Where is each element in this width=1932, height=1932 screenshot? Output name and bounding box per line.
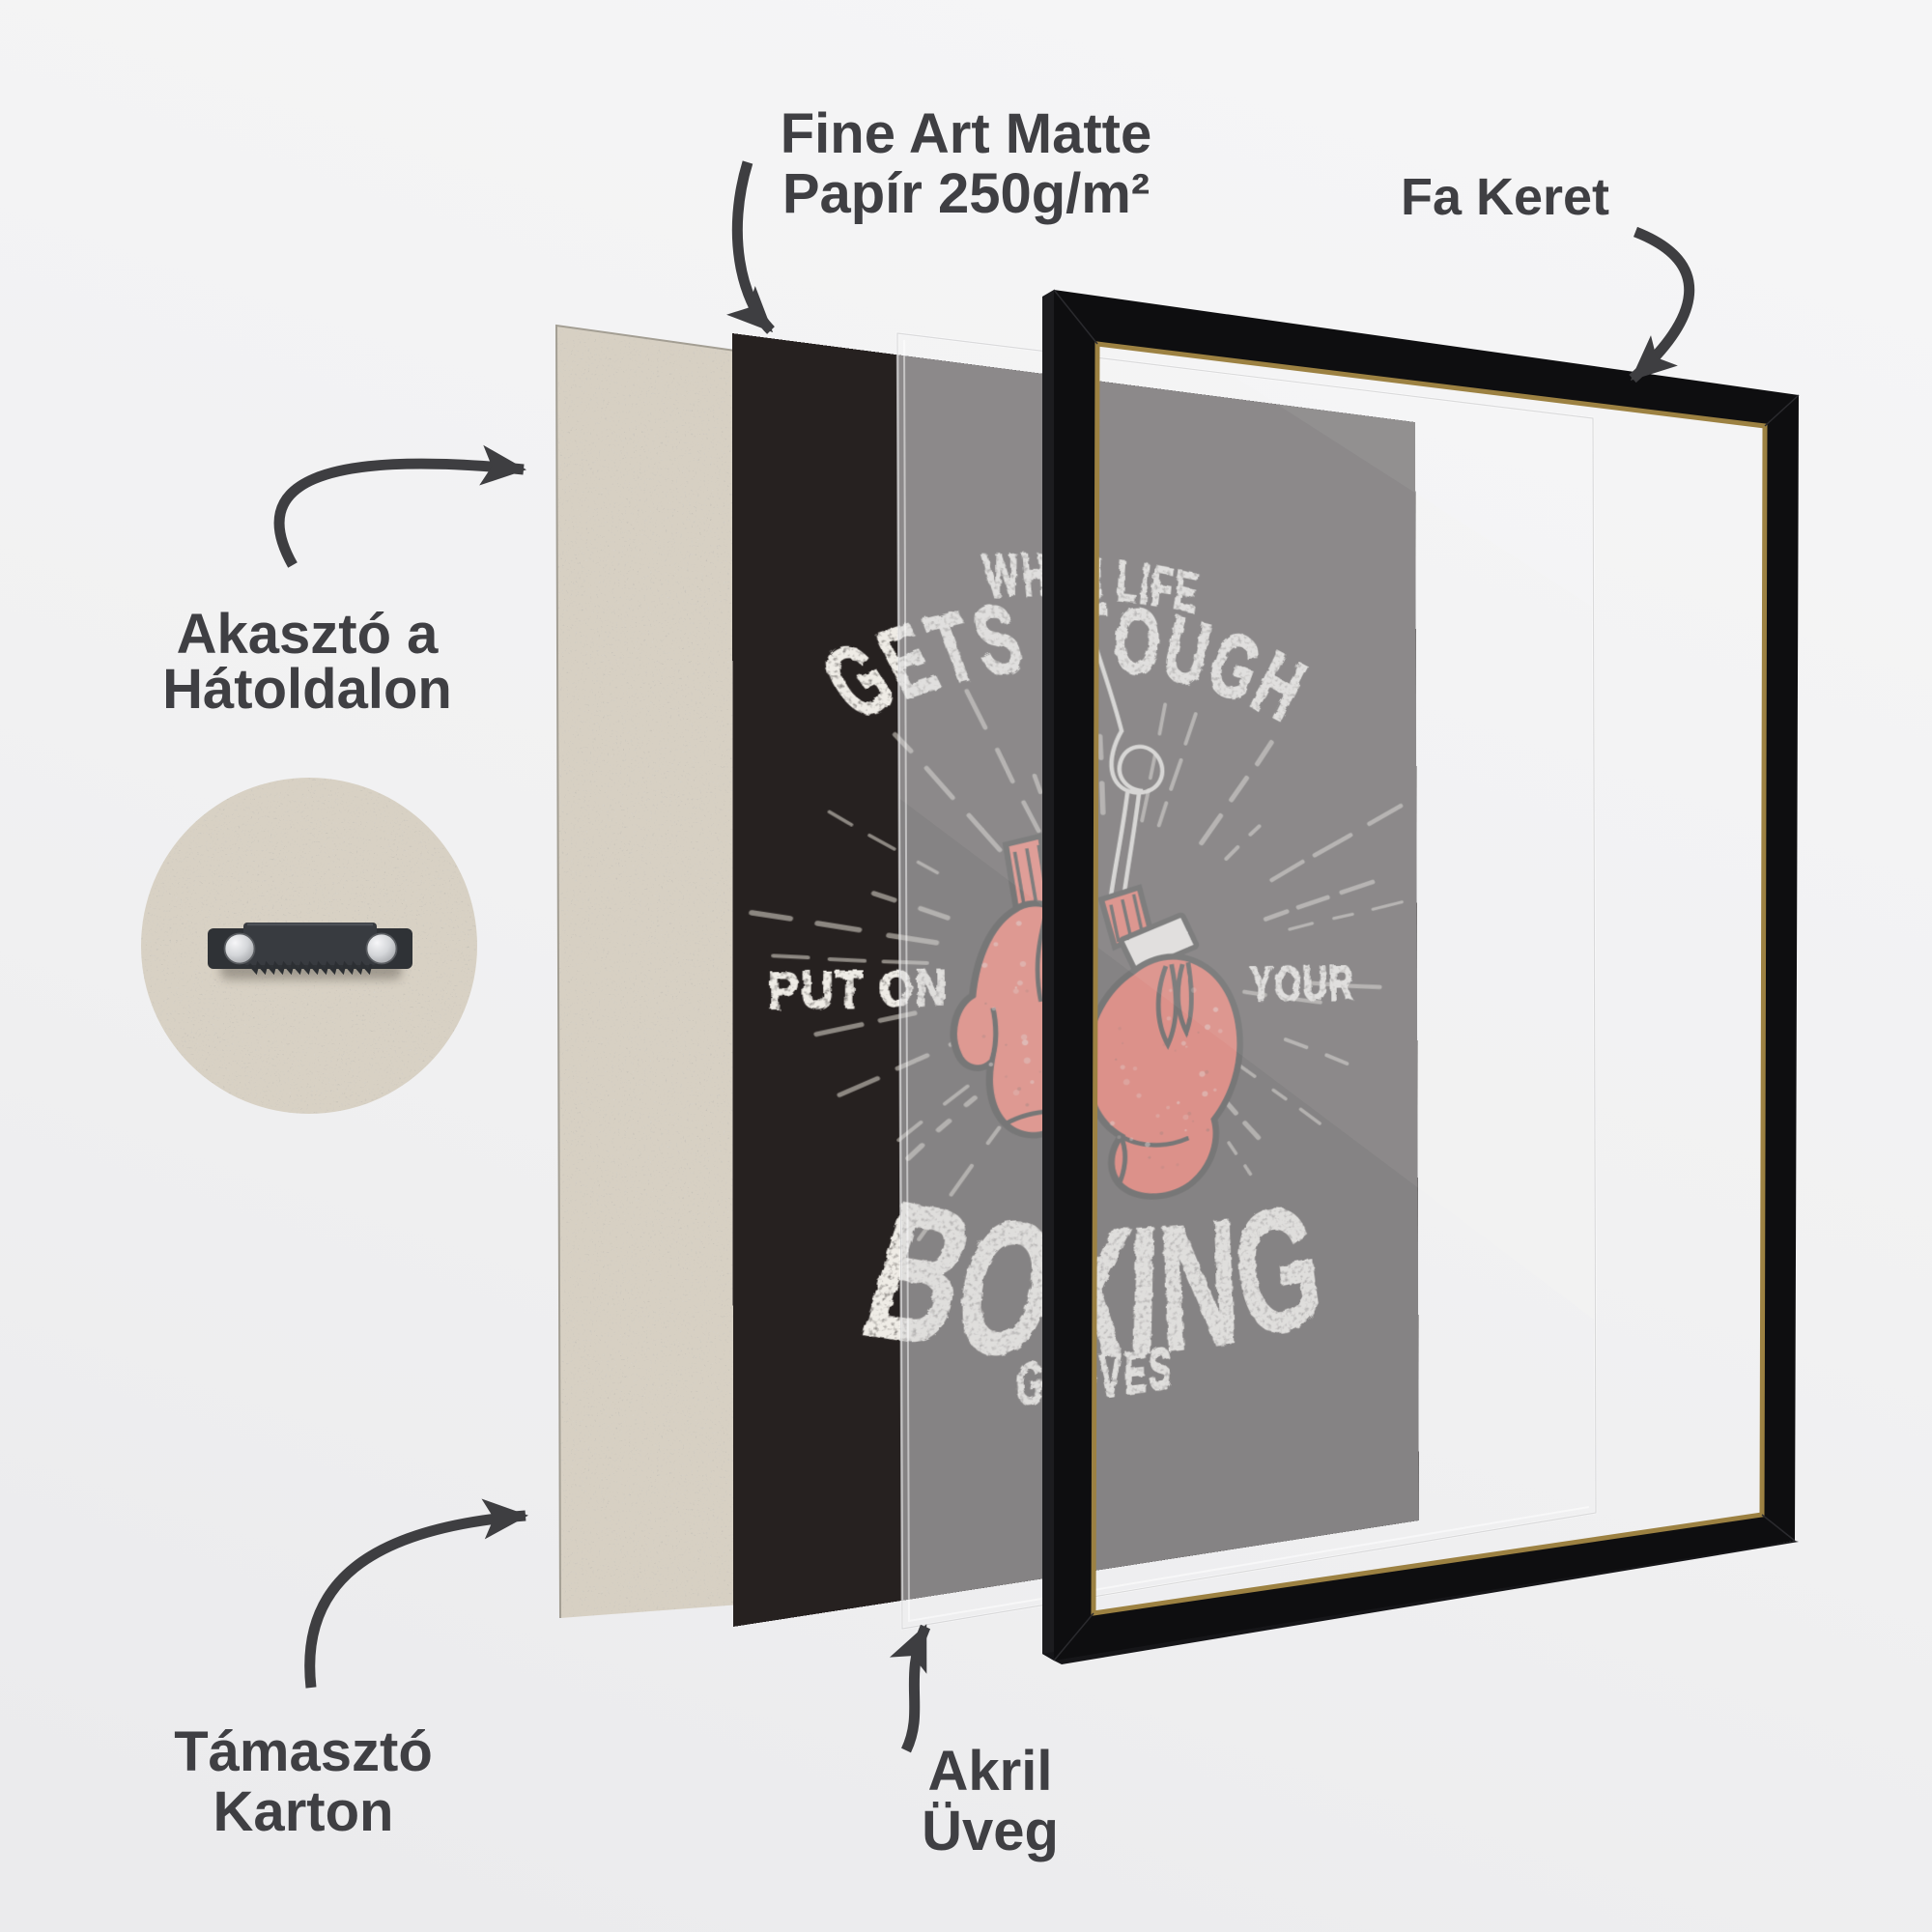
svg-text:Akril: Akril <box>928 1740 1053 1803</box>
svg-text:Papír 250g/m²: Papír 250g/m² <box>782 162 1150 225</box>
svg-text:Üveg: Üveg <box>922 1800 1059 1862</box>
svg-text:Hátoldalon: Hátoldalon <box>162 658 452 721</box>
svg-text:Fa Keret: Fa Keret <box>1401 168 1609 226</box>
svg-text:Akasztó a: Akasztó a <box>177 603 440 666</box>
svg-text:Támasztó: Támasztó <box>174 1720 433 1783</box>
svg-text:Karton: Karton <box>213 1780 394 1843</box>
svg-text:Fine Art Matte: Fine Art Matte <box>781 102 1152 165</box>
